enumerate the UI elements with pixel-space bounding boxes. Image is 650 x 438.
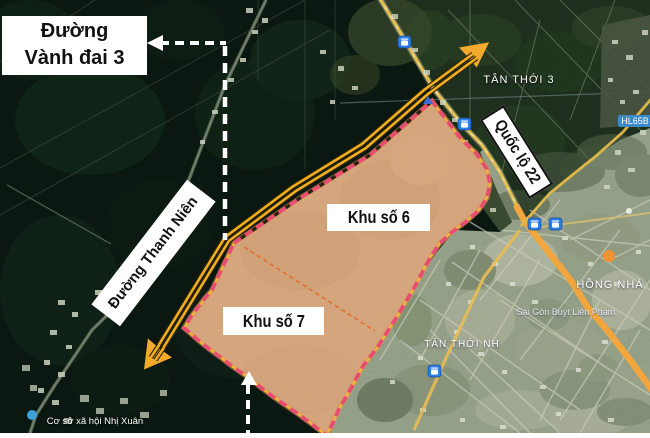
- svg-text:Cơ sở xã hội Nhị Xuân: Cơ sở xã hội Nhị Xuân: [47, 416, 143, 427]
- svg-text:TÂN THỚI NH: TÂN THỚI NH: [424, 337, 500, 350]
- svg-text:Sài Gòn Buýt Liên Phạm: Sài Gòn Buýt Liên Phạm: [517, 307, 616, 317]
- svg-text:HỒNG NHÀ: HỒNG NHÀ: [576, 278, 643, 291]
- svg-text:TÂN THỚI 3: TÂN THỚI 3: [483, 73, 554, 86]
